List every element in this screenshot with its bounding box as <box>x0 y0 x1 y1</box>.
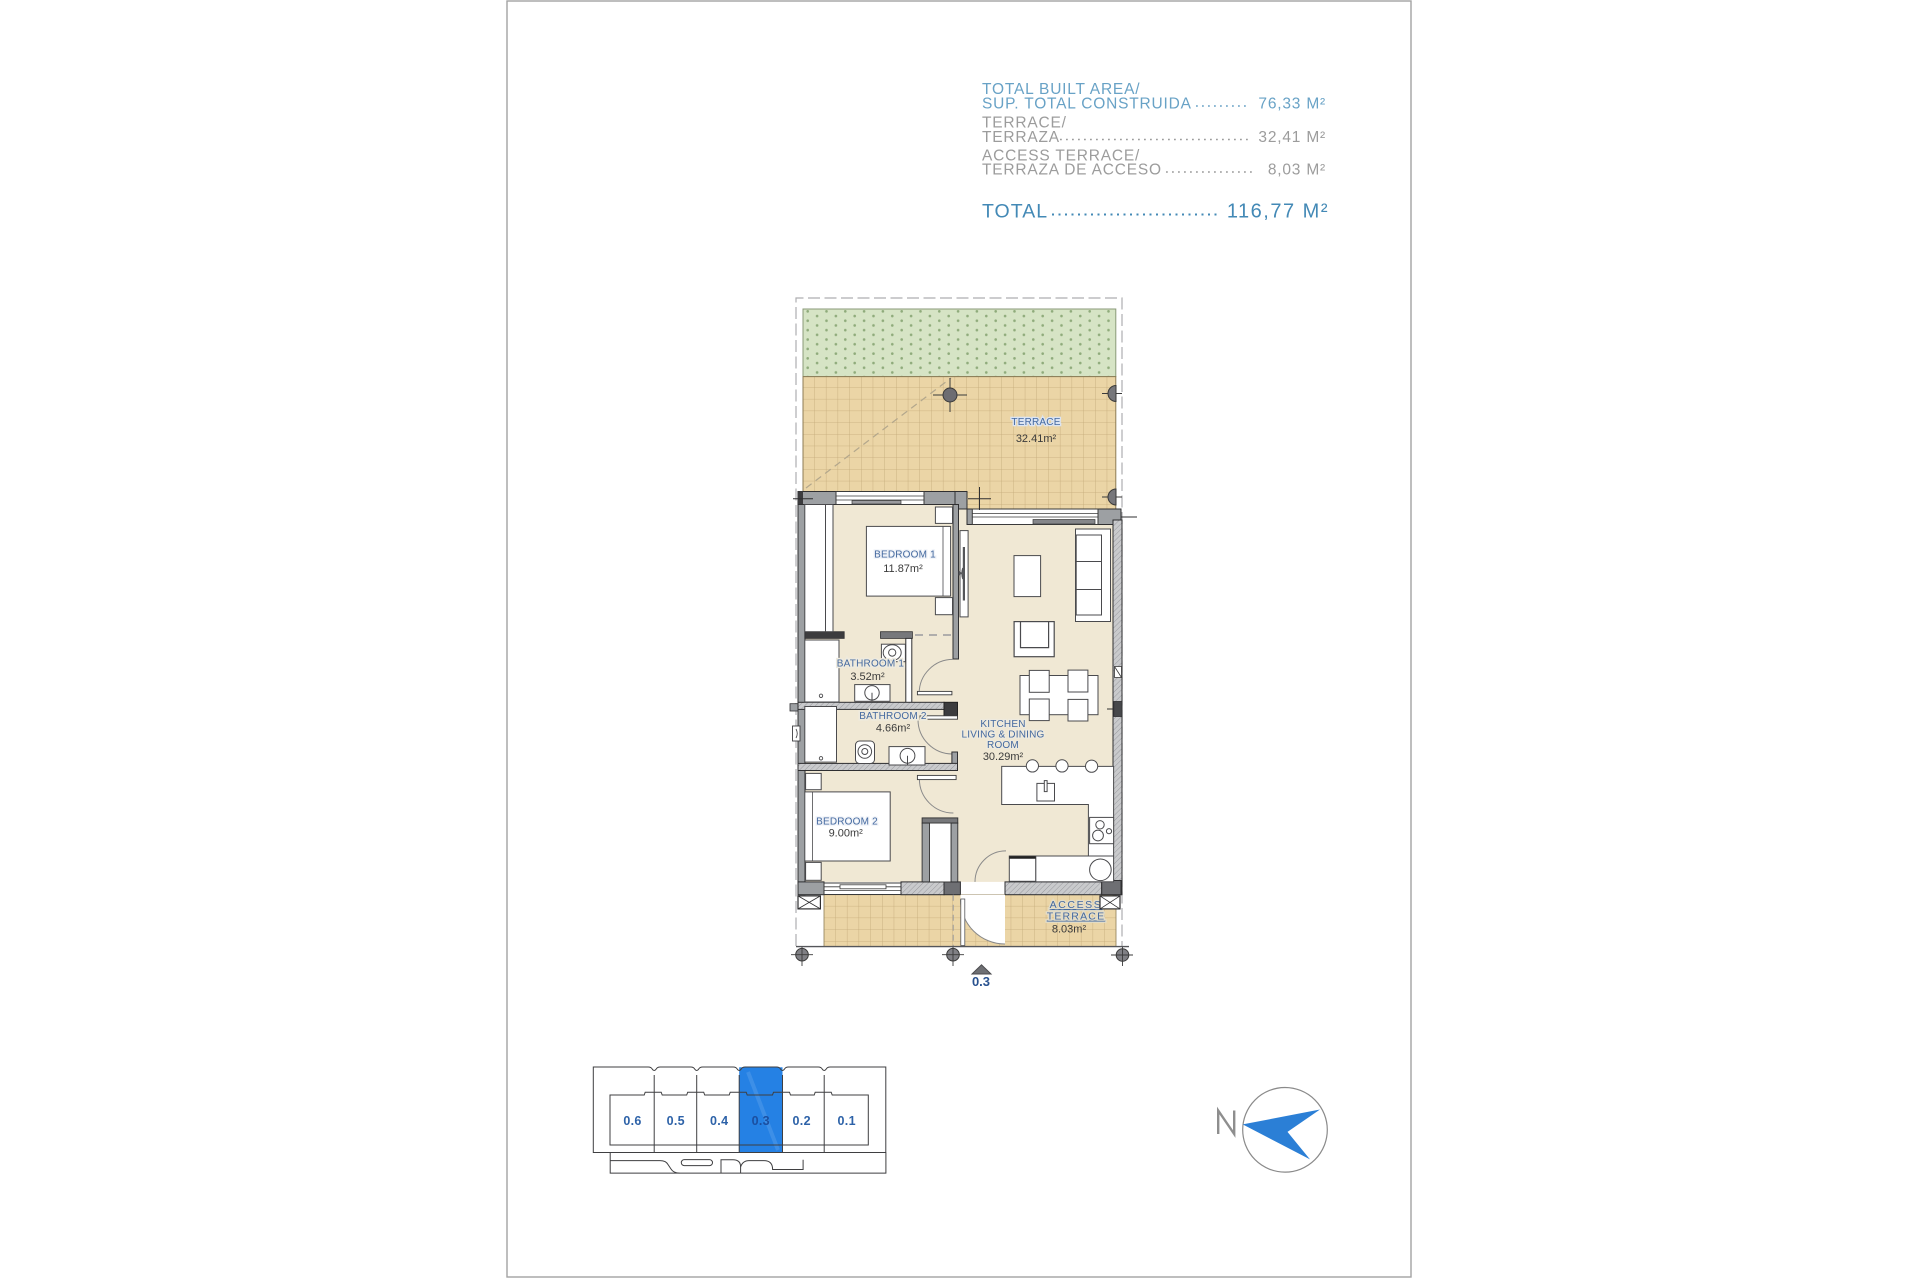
svg-text:TERRAZA DE ACCESO: TERRAZA DE ACCESO <box>982 162 1162 179</box>
svg-text:76,33 M²: 76,33 M² <box>1258 96 1326 113</box>
svg-text:9.00m²: 9.00m² <box>829 828 864 840</box>
svg-text:BATHROOM 2: BATHROOM 2 <box>859 711 927 722</box>
svg-text:0.3: 0.3 <box>752 1114 770 1128</box>
svg-text:0.2: 0.2 <box>793 1114 811 1128</box>
svg-text:116,77 M²: 116,77 M² <box>1227 201 1329 223</box>
svg-text:ROOM: ROOM <box>987 740 1019 751</box>
svg-text:0.6: 0.6 <box>623 1114 641 1128</box>
svg-text:0.3: 0.3 <box>972 974 990 989</box>
svg-text:BEDROOM 1: BEDROOM 1 <box>874 550 936 561</box>
svg-text:0.1: 0.1 <box>838 1114 856 1128</box>
svg-text:TERRAZA: TERRAZA <box>982 129 1060 146</box>
svg-text:SUP. TOTAL CONSTRUIDA: SUP. TOTAL CONSTRUIDA <box>982 96 1192 113</box>
svg-text:KITCHEN: KITCHEN <box>980 719 1025 730</box>
svg-text:32.41m²: 32.41m² <box>1016 433 1057 445</box>
svg-text:TERRACE: TERRACE <box>1011 417 1060 428</box>
svg-text:BEDROOM 2: BEDROOM 2 <box>816 817 878 828</box>
svg-text:8.03m²: 8.03m² <box>1052 924 1087 936</box>
svg-text:BATHROOM 1: BATHROOM 1 <box>837 659 905 670</box>
svg-text:11.87m²: 11.87m² <box>883 563 923 575</box>
svg-text:3.52m²: 3.52m² <box>850 671 885 683</box>
svg-text:TOTAL: TOTAL <box>982 201 1048 223</box>
svg-text:LIVING & DINING: LIVING & DINING <box>961 730 1044 741</box>
svg-text:0.4: 0.4 <box>710 1114 728 1128</box>
svg-text:30.29m²: 30.29m² <box>983 751 1024 763</box>
svg-text:8,03 M²: 8,03 M² <box>1268 162 1326 179</box>
svg-text:ACCESS: ACCESS <box>1050 899 1103 911</box>
svg-text:32,41 M²: 32,41 M² <box>1258 129 1326 146</box>
svg-text:4.66m²: 4.66m² <box>876 723 911 735</box>
svg-text:TERRACE: TERRACE <box>1047 911 1106 923</box>
svg-text:0.5: 0.5 <box>667 1114 685 1128</box>
